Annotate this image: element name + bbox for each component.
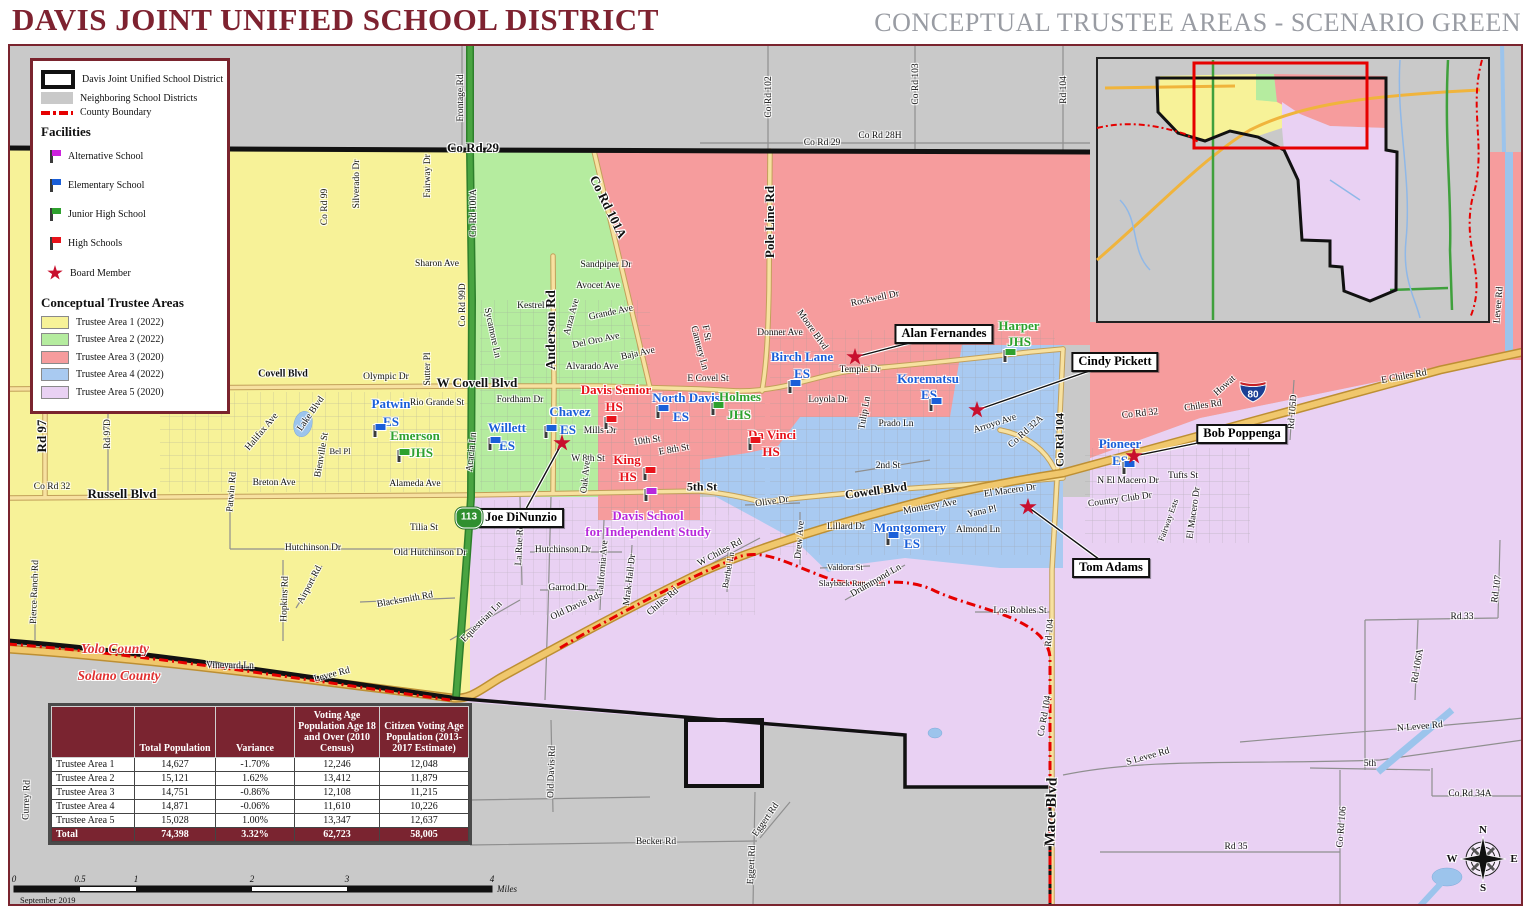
table-cell: 14,751 <box>135 786 216 800</box>
legend-item-label: Alternative School <box>68 151 143 162</box>
legend-areas-heading: Conceptual Trustee Areas <box>41 295 221 311</box>
legend-item-high-schools: High Schools <box>47 236 221 251</box>
junior-high-school-flag-icon <box>47 207 61 222</box>
table-cell: 15,028 <box>135 814 216 828</box>
legend-item-trustee-area-2-2022: Trustee Area 2 (2022) <box>41 333 221 346</box>
legend-item-trustee-area-1-2022: Trustee Area 1 (2022) <box>41 316 221 329</box>
legend-item-board-member: Board Member <box>47 265 221 281</box>
table-cell: 3.32% <box>216 828 295 842</box>
table-row: Total74,3983.32%62,72358,005 <box>52 828 469 842</box>
legend: Davis Joint Unified School DistrictNeigh… <box>30 58 230 414</box>
scale-unit-label: Miles <box>497 884 517 894</box>
table-cell: 1.62% <box>216 772 295 786</box>
table-cell: 11,879 <box>380 772 469 786</box>
table-cell: 74,398 <box>135 828 216 842</box>
table-cell: 12,108 <box>295 786 380 800</box>
table-cell: -1.70% <box>216 758 295 772</box>
district-outline-icon <box>41 70 75 89</box>
scale-tick-0.5: 0.5 <box>74 874 85 884</box>
table-header: Total Population <box>135 707 216 758</box>
alternative-school-flag-icon <box>47 149 61 164</box>
board-member-star-icon <box>47 265 63 281</box>
table-row: Trustee Area 515,0281.00%13,34712,637 <box>52 814 469 828</box>
table-cell: 14,871 <box>135 800 216 814</box>
table-cell: 11,215 <box>380 786 469 800</box>
table-row: Trustee Area 114,627-1.70%12,24612,048 <box>52 758 469 772</box>
table-cell: 58,005 <box>380 828 469 842</box>
table-row: Trustee Area 314,751-0.86%12,10811,215 <box>52 786 469 800</box>
map-date: September 2019 <box>20 895 75 905</box>
legend-item-elementary-school: Elementary School <box>47 178 221 193</box>
table-cell: -0.86% <box>216 786 295 800</box>
table-cell: 13,347 <box>295 814 380 828</box>
legend-item-alternative-school: Alternative School <box>47 149 221 164</box>
population-table: Total PopulationVarianceVoting Age Popul… <box>48 703 472 845</box>
area-color-swatch <box>41 316 69 329</box>
legend-item-label: Trustee Area 5 (2020) <box>76 387 164 398</box>
compass-east-label: E <box>1510 853 1517 865</box>
legend-item-label: Neighboring School Districts <box>80 93 197 104</box>
legend-item-label: Board Member <box>70 268 131 279</box>
scale-tick-1: 1 <box>134 874 139 884</box>
gray-fill-icon <box>41 92 73 104</box>
compass-north-label: N <box>1479 824 1487 836</box>
legend-item-label: Davis Joint Unified School District <box>82 74 223 85</box>
table-cell: 13,412 <box>295 772 380 786</box>
legend-item-label: County Boundary <box>80 107 151 118</box>
table-cell: Trustee Area 5 <box>52 814 135 828</box>
scale-tick-3: 3 <box>345 874 350 884</box>
table-cell: Trustee Area 1 <box>52 758 135 772</box>
table-header: Citizen Voting Age Population (2013-2017… <box>380 707 469 758</box>
table-cell: Trustee Area 3 <box>52 786 135 800</box>
compass-west-label: W <box>1447 853 1458 865</box>
scale-bar <box>14 886 492 892</box>
legend-item-label: Trustee Area 2 (2022) <box>76 334 164 345</box>
compass-south-label: S <box>1480 882 1486 894</box>
legend-item-trustee-area-4-2022: Trustee Area 4 (2022) <box>41 368 221 381</box>
map-sheet: DAVIS JOINT UNIFIED SCHOOL DISTRICT CONC… <box>0 0 1531 912</box>
legend-facilities-heading: Facilities <box>41 124 221 140</box>
table-header <box>52 707 135 758</box>
legend-item-trustee-area-3-2020: Trustee Area 3 (2020) <box>41 351 221 364</box>
legend-item-label: Trustee Area 4 (2022) <box>76 369 164 380</box>
table-header: Voting Age Population Age 18 and Over (2… <box>295 707 380 758</box>
table-cell: 62,723 <box>295 828 380 842</box>
high-schools-flag-icon <box>47 236 61 251</box>
district-island <box>686 720 762 786</box>
scale-tick-4: 4 <box>490 874 495 884</box>
table-cell: 12,637 <box>380 814 469 828</box>
table-cell: 15,121 <box>135 772 216 786</box>
table-cell: Trustee Area 4 <box>52 800 135 814</box>
legend-item-neighboring-school-districts: Neighboring School Districts <box>41 92 221 104</box>
inset-overview-map <box>1097 58 1489 322</box>
legend-item-junior-high-school: Junior High School <box>47 207 221 222</box>
table-cell: Total <box>52 828 135 842</box>
scale-tick-0: 0 <box>12 874 17 884</box>
table-cell: 14,627 <box>135 758 216 772</box>
area-color-swatch <box>41 386 69 399</box>
elementary-school-flag-icon <box>47 178 61 193</box>
area-color-swatch <box>41 351 69 364</box>
area-color-swatch <box>41 333 69 346</box>
legend-item-label: Junior High School <box>68 209 146 220</box>
table-cell: 12,048 <box>380 758 469 772</box>
legend-item-label: Trustee Area 1 (2022) <box>76 317 164 328</box>
table-cell: 1.00% <box>216 814 295 828</box>
table-cell: 10,226 <box>380 800 469 814</box>
table-cell: Trustee Area 2 <box>52 772 135 786</box>
table-row: Trustee Area 414,871-0.06%11,61010,226 <box>52 800 469 814</box>
legend-item-county-boundary: County Boundary <box>41 107 221 118</box>
county-dash-icon <box>41 111 73 115</box>
scale-tick-2: 2 <box>250 874 255 884</box>
legend-item-label: Trustee Area 3 (2020) <box>76 352 164 363</box>
area-color-swatch <box>41 368 69 381</box>
table-row: Trustee Area 215,1211.62%13,41211,879 <box>52 772 469 786</box>
table-header: Variance <box>216 707 295 758</box>
table-cell: 12,246 <box>295 758 380 772</box>
legend-item-trustee-area-5-2020: Trustee Area 5 (2020) <box>41 386 221 399</box>
legend-item-label: High Schools <box>68 238 122 249</box>
table-cell: 11,610 <box>295 800 380 814</box>
table-cell: -0.06% <box>216 800 295 814</box>
legend-item-label: Elementary School <box>68 180 144 191</box>
legend-item-davis-joint-unified-school-district: Davis Joint Unified School District <box>41 70 221 89</box>
